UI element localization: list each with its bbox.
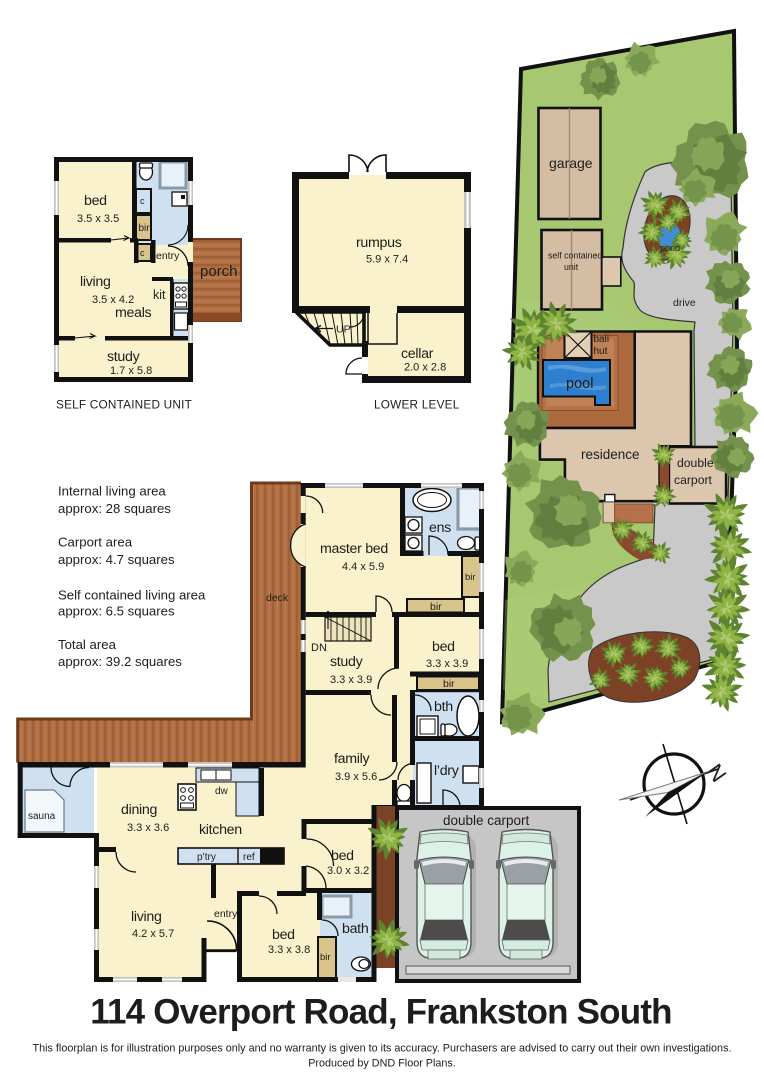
svg-text:drive: drive <box>673 297 696 309</box>
svg-text:SELF CONTAINED UNIT: SELF CONTAINED UNIT <box>56 398 192 412</box>
svg-text:Self contained living area: Self contained living area <box>58 587 206 602</box>
svg-text:garage: garage <box>549 155 593 171</box>
svg-text:kitchen: kitchen <box>199 822 242 838</box>
svg-text:double: double <box>677 456 714 470</box>
svg-text:1.7 x 5.8: 1.7 x 5.8 <box>110 365 152 377</box>
svg-text:dining: dining <box>121 802 157 818</box>
svg-text:approx: 4.7 squares: approx: 4.7 squares <box>58 552 175 567</box>
svg-text:deck: deck <box>266 592 289 604</box>
svg-text:3.0 x 3.2: 3.0 x 3.2 <box>327 865 369 877</box>
svg-text:Internal living area: Internal living area <box>58 484 166 499</box>
svg-text:2.0 x 2.8: 2.0 x 2.8 <box>404 362 446 374</box>
svg-text:kit: kit <box>153 288 166 302</box>
svg-text:pool: pool <box>566 376 593 392</box>
svg-text:l’dry: l’dry <box>434 763 460 779</box>
svg-text:UP: UP <box>336 324 351 336</box>
svg-text:bir: bir <box>320 952 331 963</box>
svg-text:bali: bali <box>594 334 610 345</box>
svg-text:bir: bir <box>443 678 455 690</box>
svg-text:114 Overport Road, Frankston S: 114 Overport Road, Frankston South <box>90 993 672 1032</box>
svg-text:dw: dw <box>215 786 229 797</box>
svg-text:Total area: Total area <box>58 637 117 652</box>
svg-text:cellar: cellar <box>401 346 434 362</box>
svg-text:bed: bed <box>272 927 295 943</box>
svg-text:3.3 x 3.6: 3.3 x 3.6 <box>127 822 169 834</box>
svg-text:rumpus: rumpus <box>356 235 402 251</box>
svg-text:Carport area: Carport area <box>58 535 133 550</box>
svg-text:entry: entry <box>156 250 180 262</box>
svg-text:3.9 x 5.6: 3.9 x 5.6 <box>335 771 377 783</box>
svg-text:c: c <box>140 248 145 258</box>
svg-text:approx: 6.5 squares: approx: 6.5 squares <box>58 604 175 619</box>
svg-text:self contained: self contained <box>548 251 602 261</box>
svg-text:porch: porch <box>200 263 238 280</box>
svg-text:5.9 x 7.4: 5.9 x 7.4 <box>366 254 408 266</box>
svg-text:bth: bth <box>434 699 453 715</box>
svg-text:bed: bed <box>84 193 107 209</box>
svg-text:bir: bir <box>430 601 442 613</box>
svg-text:bir: bir <box>465 572 476 583</box>
svg-text:4.2 x 5.7: 4.2 x 5.7 <box>132 928 174 940</box>
svg-text:sauna: sauna <box>28 811 56 822</box>
svg-text:This floorplan is for illustra: This floorplan is for illustration purpo… <box>33 1043 732 1055</box>
svg-text:bed: bed <box>331 848 354 864</box>
svg-text:bir: bir <box>139 223 151 234</box>
svg-text:residence: residence <box>581 447 640 462</box>
svg-text:Produced by DND Floor Plans.: Produced by DND Floor Plans. <box>308 1058 456 1070</box>
svg-text:bath: bath <box>342 921 368 937</box>
svg-text:pond: pond <box>660 243 680 253</box>
svg-text:LOWER LEVEL: LOWER LEVEL <box>374 398 460 412</box>
svg-text:meals: meals <box>115 305 152 321</box>
svg-text:entry: entry <box>214 908 238 920</box>
svg-text:bed: bed <box>432 639 455 655</box>
svg-text:living: living <box>80 274 111 290</box>
svg-text:ref: ref <box>243 852 255 863</box>
svg-text:3.3 x 3.9: 3.3 x 3.9 <box>330 674 372 686</box>
svg-text:approx: 28 squares: approx: 28 squares <box>58 501 171 516</box>
svg-text:3.3 x 3.9: 3.3 x 3.9 <box>426 658 468 670</box>
svg-text:3.5 x 3.5: 3.5 x 3.5 <box>77 213 119 225</box>
svg-text:3.3 x 3.8: 3.3 x 3.8 <box>268 944 310 956</box>
svg-text:p’try: p’try <box>197 852 216 863</box>
svg-text:DN: DN <box>311 642 327 654</box>
svg-text:study: study <box>330 654 364 670</box>
svg-text:ens: ens <box>429 520 451 536</box>
svg-text:family: family <box>334 751 370 767</box>
svg-text:living: living <box>131 909 162 925</box>
svg-text:carport: carport <box>674 473 713 487</box>
svg-text:c: c <box>140 196 145 206</box>
svg-text:approx: 39.2 squares: approx: 39.2 squares <box>58 654 182 669</box>
svg-text:double carport: double carport <box>443 813 530 828</box>
svg-text:unit: unit <box>564 262 579 272</box>
svg-text:master bed: master bed <box>320 541 388 557</box>
svg-text:hut: hut <box>594 346 608 357</box>
svg-text:4.4 x 5.9: 4.4 x 5.9 <box>342 561 384 573</box>
svg-text:study: study <box>107 349 141 365</box>
